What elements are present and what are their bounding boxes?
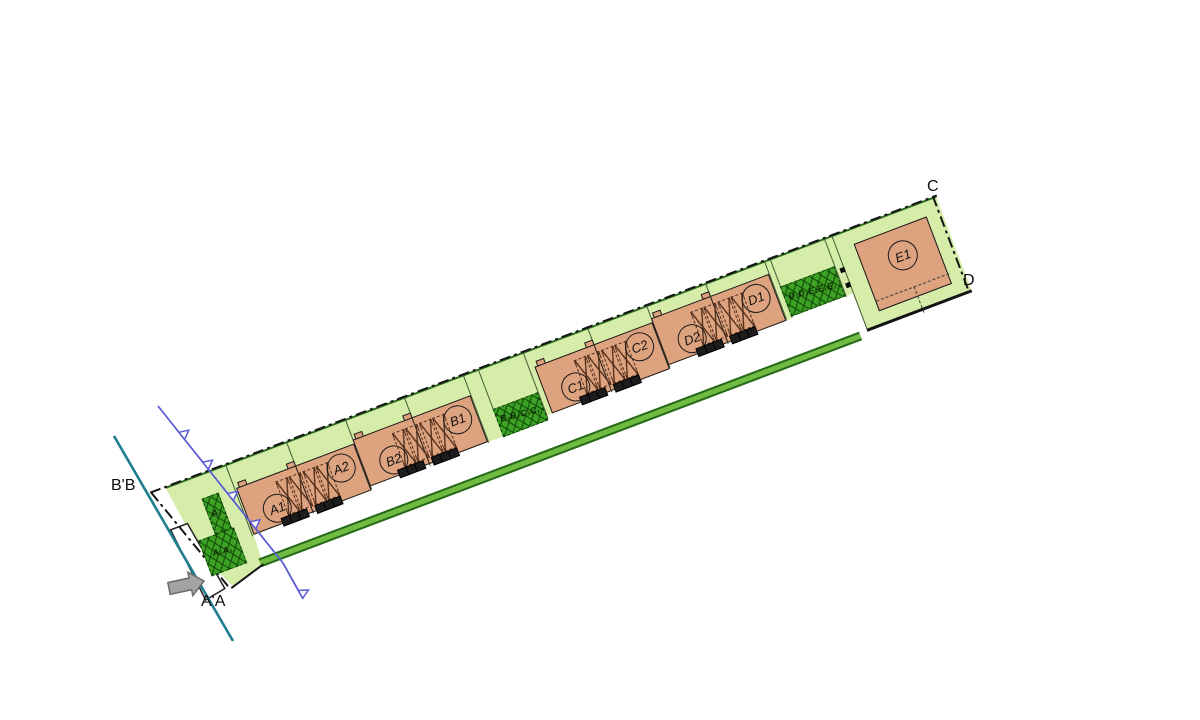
block-a-car-0-2 <box>297 508 310 520</box>
block-d-car-0-2 <box>712 339 725 351</box>
block-d-car-1-2 <box>746 326 759 338</box>
block-c-entrance-porch-1 <box>584 339 595 348</box>
corner-label-d: D <box>963 272 975 290</box>
block-b-car-0-2 <box>414 460 427 472</box>
site-plan-canvas: A₁A₂A₁B₁B₂C₂C₁D₁D₂E₁E₁E₁A1A2B2B1C1C2D2D1… <box>0 0 1200 720</box>
block-a-car-1-2 <box>331 496 344 508</box>
block-b-entrance-porch-0 <box>354 431 365 440</box>
block-a-entrance-porch-1 <box>286 461 297 470</box>
block-c-entrance-porch-0 <box>535 358 546 367</box>
block-b-car-1-2 <box>448 447 461 459</box>
boundary-north <box>150 194 937 493</box>
section-line-marker-0 <box>179 430 189 439</box>
corner-label-c: C <box>927 178 939 196</box>
block-d-entrance-porch-0 <box>652 310 663 319</box>
section-label-a: A'A <box>201 593 225 611</box>
block-d-entrance-porch-1 <box>701 291 712 300</box>
block-c-car-1-2 <box>629 374 642 386</box>
section-label-b: B'B <box>111 477 135 495</box>
block-c-car-0-2 <box>596 387 609 399</box>
block-a-entrance-porch-0 <box>237 479 248 488</box>
building-label-e1: E1 <box>883 236 922 275</box>
block-b-entrance-porch-1 <box>402 412 413 421</box>
site-plan-rotated-group: A₁A₂A₁B₁B₂C₂C₁D₁D₂E₁E₁E₁A1A2B2B1C1C2D2D1… <box>152 184 1019 632</box>
